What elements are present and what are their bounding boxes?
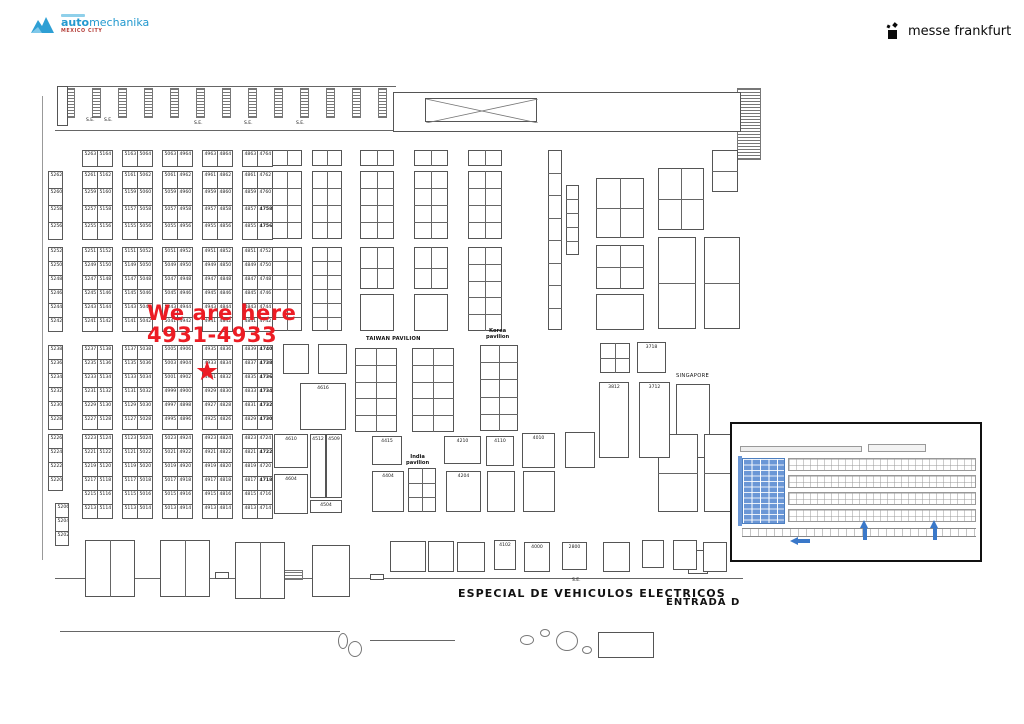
booth-cell: 5252 (48, 247, 63, 262)
booth-cell: 5259 (82, 188, 98, 206)
booth-cell: 4921 (202, 448, 218, 463)
minimap-top-structure (740, 446, 862, 452)
booth-4604: 4604 (274, 474, 308, 514)
booth-cell: 4836 (217, 345, 233, 360)
minimap-arrow-up-tail (933, 528, 937, 540)
booth-cell: 5059 (162, 188, 178, 206)
booth-block (318, 344, 347, 374)
booth-cell: 4927 (202, 401, 218, 416)
booth-cell: 5062 (137, 171, 153, 189)
booth-2800: 2800 (562, 542, 587, 570)
booth-cell: 5202 (55, 531, 69, 546)
landscape-oval (556, 631, 578, 651)
block-grid-line (615, 343, 616, 373)
booth-4210: 4210 (444, 436, 481, 464)
minimap-arrow-up-tail (863, 528, 867, 540)
minimap-booth-row (788, 492, 976, 505)
booth-cell: 5055 (162, 222, 178, 240)
booth-cell: 5241 (82, 317, 98, 332)
booth-block (414, 294, 448, 331)
booth-cell: 4923 (202, 434, 218, 449)
landscape-oval (540, 629, 550, 637)
booth-cell: 5016 (137, 490, 153, 505)
booth-cell: 4904 (177, 359, 193, 374)
dock-hatch-strip (352, 88, 361, 118)
booth-cell: 5019 (162, 462, 178, 477)
booth-cell: 5058 (137, 205, 153, 223)
booth-block (673, 540, 697, 570)
booth-cell: 5229 (82, 401, 98, 416)
booth-cell: 5152 (97, 247, 113, 262)
booth-4504: 4504 (310, 500, 342, 513)
booth-cell: 4847 (242, 275, 258, 290)
booth-cell: 5003 (162, 359, 178, 374)
landscape-oval (338, 633, 348, 649)
booth-cell: 5141 (122, 317, 138, 332)
booth-block (703, 542, 727, 572)
booth-cell: 4859 (242, 188, 258, 206)
booth-cell: 5013 (162, 504, 178, 519)
minimap-arrow-up-icon (930, 520, 938, 528)
landscape-oval (520, 635, 534, 645)
minimap-bottom-row (742, 528, 976, 537)
minimap-top-structure (868, 444, 926, 452)
dock-hatch-strip (92, 88, 101, 118)
booth-4610: 4610 (274, 434, 308, 468)
block-grid-line (485, 247, 486, 331)
booth-block (487, 471, 515, 512)
top-wall-line (60, 86, 396, 87)
booth-cell: 5115 (122, 490, 138, 505)
booth-cell: 4900 (177, 387, 193, 402)
dock-hatch-strip (248, 88, 257, 118)
booth-cell: 4963 (202, 150, 218, 167)
booth-cell: 5119 (122, 462, 138, 477)
booth-cell: 5036 (137, 359, 153, 374)
block-grid-line (110, 540, 111, 597)
booth-cell: 4999 (162, 387, 178, 402)
booth-cell: 4956 (177, 222, 193, 240)
booth-cell: 5163 (122, 150, 138, 167)
booth-cell: 4898 (177, 401, 193, 416)
block-grid-line (431, 247, 432, 289)
booth-cell: 5247 (82, 275, 98, 290)
booth-4512: 4512 (310, 434, 326, 498)
booth-cell: 4997 (162, 401, 178, 416)
booth-cell: 5117 (122, 476, 138, 491)
booth-cell: 5223 (82, 434, 98, 449)
landscape-oval (582, 646, 592, 654)
booth-cell: 5255 (82, 222, 98, 240)
booth-cell: 5131 (122, 387, 138, 402)
booth-cell: 5145 (122, 289, 138, 304)
se-label: S.E. (104, 118, 113, 123)
booth-cell: 4858 (217, 205, 233, 223)
block-grid-line (548, 285, 562, 286)
booth-block (566, 185, 579, 255)
booth-block (457, 542, 485, 572)
booth-4415: 4415 (372, 436, 402, 465)
booth-cell: 4962 (177, 171, 193, 189)
block-grid-line (499, 345, 500, 431)
minimap-booth-row (788, 458, 976, 471)
booth-cell: 4947 (202, 275, 218, 290)
booth-cell: 4920 (177, 462, 193, 477)
booth-cell: 5018 (137, 476, 153, 491)
block-grid-line (327, 171, 328, 239)
block-grid-line (548, 218, 562, 219)
booth-cell: 5124 (97, 434, 113, 449)
booth-cell: 5260 (48, 188, 63, 206)
booth-cell: 5061 (162, 171, 178, 189)
booth-cell: 5123 (122, 434, 138, 449)
booth-cell: 4995 (162, 415, 178, 430)
booth-block (596, 294, 644, 330)
booth-cell: 4736 (257, 373, 273, 388)
se-label: S.E. (194, 121, 203, 126)
booth-cell: 4852 (217, 247, 233, 262)
block-grid-line (566, 213, 579, 214)
minimap-arrow-left-tail (798, 539, 810, 543)
booth-cell: 5060 (137, 188, 153, 206)
outdoor-line (60, 631, 340, 632)
block-grid-line (260, 542, 261, 599)
booth-cell: 5215 (82, 490, 98, 505)
block-grid-line (422, 468, 423, 512)
booth-cell: 5157 (122, 205, 138, 223)
wall-notch (215, 572, 229, 579)
dock-hatch-strip (196, 88, 205, 118)
block-grid-line (327, 150, 328, 166)
booth-cell: 5249 (82, 261, 98, 276)
block-grid-line (431, 171, 432, 239)
booth-cell: 4850 (217, 261, 233, 276)
booth-cell: 4832 (217, 373, 233, 388)
booth-3718: 3718 (637, 342, 666, 373)
location-star-icon: ★ (195, 358, 219, 385)
booth-block (642, 540, 664, 568)
booth-cell: 5232 (48, 387, 63, 402)
block-grid-line (548, 308, 562, 309)
booth-cell: 4837 (242, 359, 258, 374)
booth-cell: 5148 (97, 275, 113, 290)
booth-cell: 5023 (162, 434, 178, 449)
block-grid-line (712, 171, 738, 172)
booth-cell: 4738 (257, 359, 273, 374)
booth-cell: 4819 (242, 462, 258, 477)
booth-cell: 4714 (257, 504, 273, 519)
booth-cell: 4925 (202, 415, 218, 430)
booth-cell: 4958 (177, 205, 193, 223)
booth-cell: 5219 (82, 462, 98, 477)
booth-cell: 5204 (55, 517, 69, 532)
block-grid-line (485, 150, 486, 166)
booth-cell: 5224 (48, 448, 63, 463)
block-grid-line (548, 263, 562, 264)
booth-cell: 4862 (217, 171, 233, 189)
booth-cell: 5038 (137, 345, 153, 360)
area-label: ENTRADA D (666, 597, 740, 609)
booth-cell: 5226 (48, 434, 63, 449)
booth-cell: 5256 (48, 222, 63, 240)
booth-cell: 5130 (97, 401, 113, 416)
booth-cell: 4828 (217, 401, 233, 416)
booth-cell: 4861 (242, 171, 258, 189)
booth-cell: 4957 (202, 205, 218, 223)
booth-cell: 5142 (97, 317, 113, 332)
block-grid-line (548, 195, 562, 196)
block-grid-line (185, 540, 186, 597)
booth-cell: 5246 (48, 289, 63, 304)
booth-cell: 4913 (202, 504, 218, 519)
booth-cell: 5228 (48, 415, 63, 430)
booth-cell: 4748 (257, 275, 273, 290)
area-label: India pavilion (406, 455, 429, 467)
booth-4110: 4110 (486, 436, 514, 466)
booth-4616: 4616 (300, 383, 346, 430)
booth-cell: 5122 (97, 448, 113, 463)
booth-cell: 4950 (177, 261, 193, 276)
booth-cell: 4856 (217, 222, 233, 240)
booth-cell: 4955 (202, 222, 218, 240)
block-grid-line (287, 171, 288, 239)
booth-cell: 5220 (48, 476, 63, 491)
dock-end-block (57, 86, 68, 126)
se-label: S.E. (244, 121, 253, 126)
minimap-highlighted-zone (742, 458, 785, 524)
booth-cell: 5160 (97, 188, 113, 206)
booth-cell: 5134 (97, 373, 113, 388)
booth-cell: 4826 (217, 415, 233, 430)
booth-cell: 4814 (217, 504, 233, 519)
booth-cell: 5017 (162, 476, 178, 491)
booth-cell: 4822 (217, 448, 233, 463)
booth-cell: 5135 (122, 359, 138, 374)
block-grid-line (566, 227, 579, 228)
booth-cell: 4864 (217, 150, 233, 167)
booth-4404: 4404 (372, 471, 404, 512)
block-grid-line (620, 178, 621, 238)
booth-cell: 5248 (48, 275, 63, 290)
booth-cell: 4833 (242, 387, 258, 402)
booth-cell: 5258 (48, 205, 63, 223)
floorplan-page: automechanika MEXICO CITY messe frankfur… (0, 0, 1024, 724)
booth-block (283, 344, 309, 374)
booth-cell: 5234 (48, 373, 63, 388)
dock-hatch-strip (144, 88, 153, 118)
booth-cell: 5147 (122, 275, 138, 290)
booth-cell: 5144 (97, 303, 113, 318)
booth-cell: 4914 (177, 504, 193, 519)
booth-cell: 4896 (177, 415, 193, 430)
booth-cell: 4818 (217, 476, 233, 491)
booth-cell: 5063 (162, 150, 178, 167)
booth-cell: 4959 (202, 188, 218, 206)
booth-cell: 5021 (162, 448, 178, 463)
booth-block (523, 471, 555, 512)
block-grid-line (548, 240, 562, 241)
booth-cell: 4960 (177, 188, 193, 206)
booth-cell: 5146 (97, 289, 113, 304)
booth-cell: 5001 (162, 373, 178, 388)
booth-cell: 5261 (82, 171, 98, 189)
we-are-here-label: We are here (147, 303, 296, 325)
booth-cell: 4732 (257, 401, 273, 416)
block-grid-line (566, 241, 579, 242)
booth-cell: 5245 (82, 289, 98, 304)
booth-cell: 5233 (82, 373, 98, 388)
booth-cell: 4722 (257, 448, 273, 463)
area-label: TAIWAN PAVILION (366, 337, 421, 343)
booth-cell: 4922 (177, 448, 193, 463)
booth-cell: 4720 (257, 462, 273, 477)
se-label: S.E. (296, 121, 305, 126)
booth-cell: 5133 (122, 373, 138, 388)
booth-cell: 5151 (122, 247, 138, 262)
booth-cell: 5047 (162, 275, 178, 290)
booth-cell: 5136 (97, 359, 113, 374)
booth-cell: 5164 (97, 150, 113, 167)
booth-4000: 4000 (524, 542, 550, 572)
booth-cell: 5128 (97, 415, 113, 430)
booth-cell: 4902 (177, 373, 193, 388)
booth-cell: 5114 (97, 504, 113, 519)
se-label: S.E. (572, 578, 581, 583)
booth-cell: 4855 (242, 222, 258, 240)
booth-block (390, 541, 426, 572)
bottom-wall-line (55, 578, 743, 579)
booth-cell: 5056 (137, 222, 153, 240)
booth-block (428, 541, 454, 572)
booth-cell: 4750 (257, 261, 273, 276)
block-grid-line (377, 247, 378, 289)
booth-cell: 5243 (82, 303, 98, 318)
block-grid-line (287, 150, 288, 166)
booth-cell: 4752 (257, 247, 273, 262)
booth-cell: 5149 (122, 261, 138, 276)
block-grid-line (658, 473, 698, 474)
booth-cell: 5022 (137, 448, 153, 463)
booth-cell: 4815 (242, 490, 258, 505)
dock-hatch-strip (274, 88, 283, 118)
booth-cell: 4760 (257, 188, 273, 206)
booth-cell: 4762 (257, 171, 273, 189)
booth-cell: 4839 (242, 345, 258, 360)
booth-cell: 5138 (97, 345, 113, 360)
outdoor-block (598, 632, 654, 658)
booth-cell: 5113 (122, 504, 138, 519)
booth-cell: 5161 (122, 171, 138, 189)
booth-cell: 4724 (257, 434, 273, 449)
booth-cell: 4830 (217, 387, 233, 402)
booth-3812: 3812 (599, 382, 629, 458)
booth-block (312, 545, 350, 597)
booth-cell: 5005 (162, 345, 178, 360)
booth-cell: 4860 (217, 188, 233, 206)
minimap-booth-row (788, 509, 976, 522)
booth-cell: 5250 (48, 261, 63, 276)
booth-cell: 5230 (48, 401, 63, 416)
booth-cell: 5048 (137, 275, 153, 290)
booth-cell: 5015 (162, 490, 178, 505)
booth-cell: 4857 (242, 205, 258, 223)
booth-cell: 5127 (122, 415, 138, 430)
booth-cell: 4964 (177, 150, 193, 167)
booth-cell: 4835 (242, 373, 258, 388)
area-label: SINGAPORE (676, 374, 709, 380)
booth-cell: 4906 (177, 345, 193, 360)
overview-minimap (730, 422, 982, 562)
booth-cell: 4821 (242, 448, 258, 463)
booth-cell: 5235 (82, 359, 98, 374)
dock-hatch-strip (170, 88, 179, 118)
booth-cell: 5051 (162, 247, 178, 262)
booth-cell: 5028 (137, 415, 153, 430)
booth-cell: 4730 (257, 415, 273, 430)
dock-hatch-strip (118, 88, 127, 118)
booth-cell: 5129 (122, 401, 138, 416)
dock-hatch-strip (222, 88, 231, 118)
area-label: Korea pavilion (486, 329, 509, 341)
booth-cell: 4740 (257, 345, 273, 360)
booth-cell: 4851 (242, 247, 258, 262)
booth-cell: 5150 (97, 261, 113, 276)
minimap-booth-row (788, 475, 976, 488)
booth-4010: 4010 (522, 433, 555, 468)
booth-cell: 5050 (137, 261, 153, 276)
booth-cell: 5158 (97, 205, 113, 223)
booth-cell: 4951 (202, 247, 218, 262)
minimap-arrow-up-icon (860, 520, 868, 528)
wall-notch (370, 574, 384, 580)
booth-cell: 4961 (202, 171, 218, 189)
booth-cell: 5257 (82, 205, 98, 223)
booth-cell: 5236 (48, 359, 63, 374)
booth-cell: 5143 (122, 303, 138, 318)
booth-cell: 5014 (137, 504, 153, 519)
block-grid-line (658, 283, 696, 284)
booth-cell: 4915 (202, 490, 218, 505)
booth-cell: 5120 (97, 462, 113, 477)
booth-cell: 4863 (242, 150, 258, 167)
dock-hatch-strip (326, 88, 335, 118)
block-grid-line (431, 150, 432, 166)
booth-cell: 4917 (202, 476, 218, 491)
booth-cell: 4829 (242, 415, 258, 430)
booth-block (603, 542, 630, 572)
booth-cell: 5262 (48, 171, 63, 189)
booth-cell: 5155 (122, 222, 138, 240)
booth-cell: 4924 (177, 434, 193, 449)
booth-cell: 4758 (257, 205, 273, 223)
booth-cell: 4813 (242, 504, 258, 519)
left-boundary-line (42, 96, 43, 560)
booth-cell: 5231 (82, 387, 98, 402)
booth-cell: 5206 (55, 503, 69, 518)
booth-cell: 5064 (137, 150, 153, 167)
booth-cell: 4756 (257, 222, 273, 240)
booth-4509: 4509 (326, 434, 342, 498)
booth-cell: 5118 (97, 476, 113, 491)
booth-block (360, 294, 394, 331)
block-grid-line (376, 348, 377, 432)
we-are-here-booths: 4931-4933 (147, 325, 277, 347)
booth-cell: 5244 (48, 303, 63, 318)
booth-cell: 4764 (257, 150, 273, 167)
booth-cell: 5162 (97, 171, 113, 189)
booth-3712: 3712 (639, 382, 670, 458)
booth-cell: 5159 (122, 188, 138, 206)
